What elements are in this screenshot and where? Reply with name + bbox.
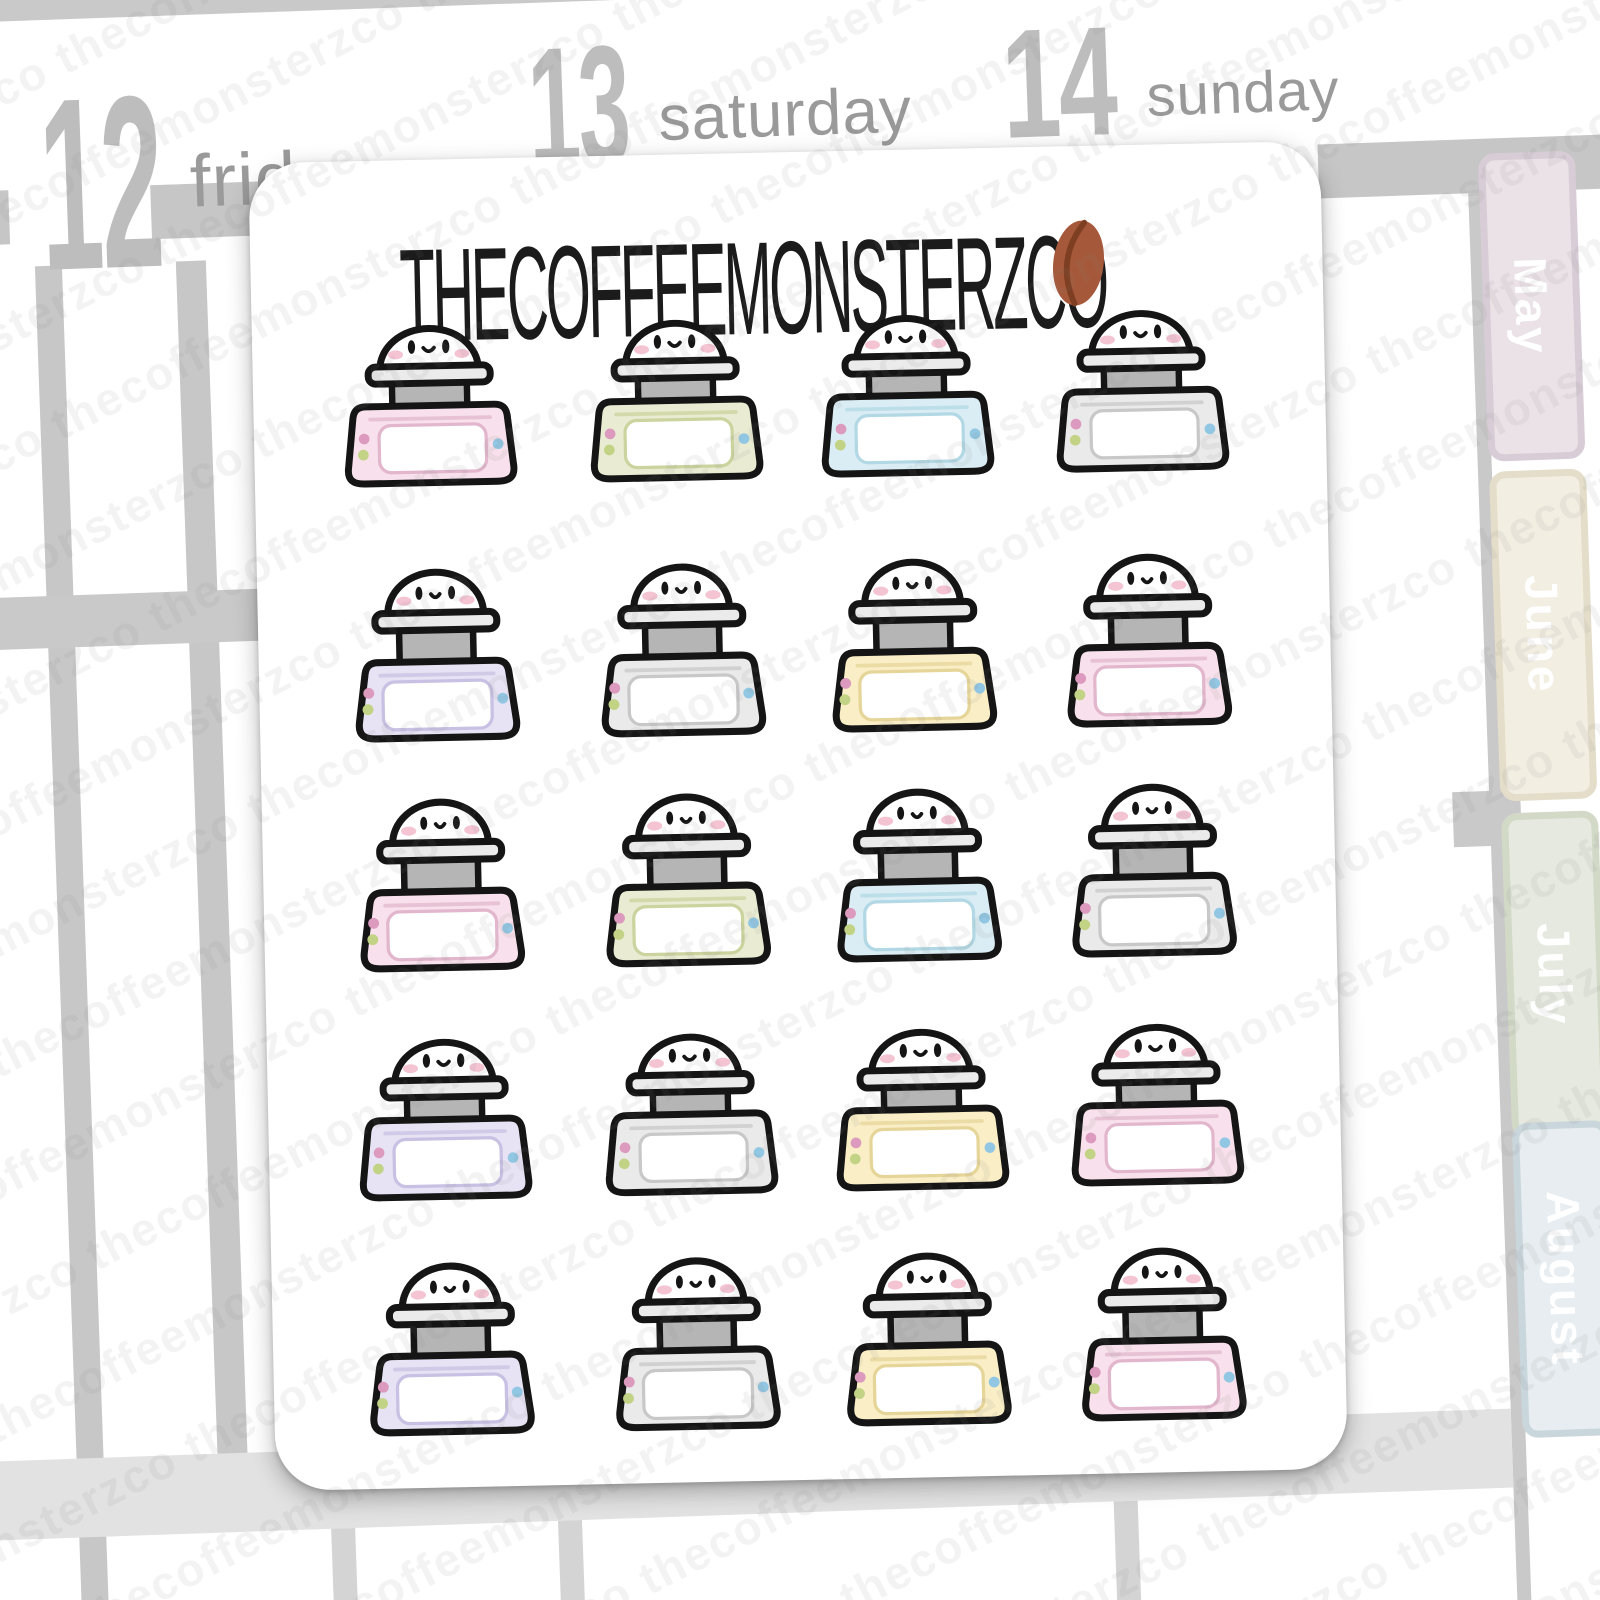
rice-cooker-sticker-pink <box>1058 1013 1255 1199</box>
day-number: 13 <box>526 43 631 171</box>
sticker-row-1 <box>251 297 1327 511</box>
sticker-row-2 <box>257 545 1333 759</box>
planner-column-divider <box>35 265 113 1600</box>
rice-cooker-sticker-blue <box>808 304 1005 490</box>
day-name: sunday <box>1145 56 1340 130</box>
rice-cooker-sticker-pink <box>331 314 528 500</box>
rice-cooker-sticker-pink <box>1048 547 1248 736</box>
rice-cooker-sticker-green <box>577 308 774 494</box>
planner-column-divider <box>558 1520 590 1600</box>
rice-cooker-sticker-yellow <box>823 1017 1020 1203</box>
sticker-row-5 <box>271 1239 1347 1453</box>
rice-cooker-sticker-gray <box>597 1250 797 1439</box>
rice-cooker-sticker-pink <box>341 791 541 980</box>
planner-column-divider <box>1114 1501 1146 1600</box>
day-number: 12 <box>37 92 164 275</box>
rice-cooker-sticker-pink <box>1063 1240 1263 1429</box>
rice-cooker-sticker-yellow <box>814 552 1014 741</box>
rice-cooker-sticker-gray <box>592 1022 789 1208</box>
rice-cooker-sticker-purple <box>351 1255 551 1444</box>
day-name: saturday <box>657 72 913 155</box>
planner-column-divider <box>331 1528 363 1600</box>
rice-cooker-sticker-yellow <box>828 1245 1028 1434</box>
sticker-row-3 <box>261 775 1337 989</box>
month-tab-july: July <box>1501 810 1600 1139</box>
sticker-row-4 <box>266 1011 1342 1225</box>
sticker-sheet: THECOFFEEMONSTERZCO <box>248 141 1348 1491</box>
rice-cooker-sticker-green <box>587 786 787 975</box>
rice-cooker-sticker-blue <box>818 781 1018 970</box>
product-photo: MayJuneJulyAugust 12friday13saturday14su… <box>0 0 1600 1600</box>
rice-cooker-sticker-purple <box>346 1027 543 1213</box>
month-tab-august: August <box>1512 1120 1600 1438</box>
rice-cooker-sticker-gray <box>1043 299 1240 485</box>
rice-cooker-sticker-gray <box>1053 777 1253 966</box>
rice-cooker-sticker-purple <box>337 562 537 751</box>
planner-column-divider <box>176 260 248 1456</box>
rice-cooker-sticker-gray <box>583 556 783 745</box>
coffee-bean-icon <box>1046 213 1110 312</box>
day-header-14: 14sunday <box>1000 16 1341 143</box>
day-number: 14 <box>1000 24 1117 141</box>
month-tab-june: June <box>1489 468 1597 801</box>
